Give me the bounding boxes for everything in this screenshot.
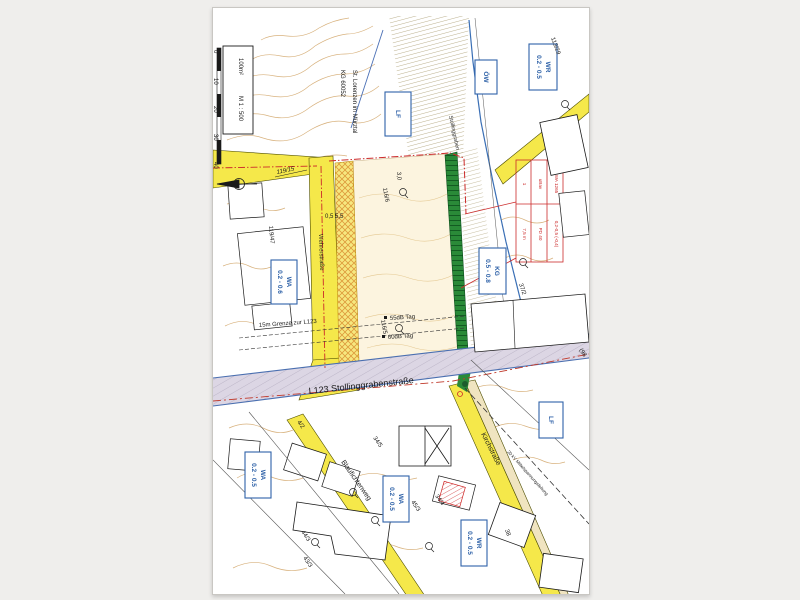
table-cell-2: uBav bbox=[538, 179, 543, 190]
zoning-box-oew: ÖW bbox=[475, 60, 497, 94]
table-cell-5: PD 40 bbox=[538, 228, 543, 241]
parcel-43-3: 43/3 bbox=[301, 556, 313, 570]
red-table-text: 1 uBav WA 1265 7,5 m PD 40 0,2-0,5 (-0,4… bbox=[522, 175, 559, 248]
zoning-box-wr-bottomright: WR 0.2 - 0.5 bbox=[461, 520, 487, 566]
label-dim-green: 3,0 bbox=[395, 172, 402, 181]
zoning-box-wa-bottommid: WA 0.2 - 0.5 bbox=[383, 476, 409, 522]
zoning-box-wa-left: WA 0.2 - 0.6 bbox=[271, 260, 297, 304]
label-dim-road: 0,5 5,5 bbox=[325, 214, 344, 220]
table-cell-4: 7,5 m bbox=[522, 228, 527, 240]
building-l-shape bbox=[293, 502, 391, 560]
table-cell-3: WA 1265 bbox=[554, 175, 559, 194]
building bbox=[539, 553, 583, 592]
scale-tick: 10 bbox=[213, 78, 218, 85]
parcel-45-3: 45/3 bbox=[409, 500, 421, 514]
zoning-density: 0.2 - 0.5 bbox=[466, 531, 473, 555]
zoning-code: LF bbox=[394, 110, 401, 118]
kg-name: St. Lorenzen im Mürztal bbox=[351, 70, 357, 133]
parcel-119-47: 119/47 bbox=[267, 226, 275, 245]
scanned-plan-sheet: 1 uBav WA 1265 7,5 m PD 40 0,2-0,5 (-0,4… bbox=[212, 7, 590, 595]
table-cell-1: 1 bbox=[522, 183, 527, 186]
zoning-box-lf-right: LF bbox=[539, 402, 563, 438]
zoning-box-wa-bottomleft: WA 0.2 - 0.5 bbox=[245, 452, 271, 498]
junction-green-marker bbox=[462, 381, 468, 387]
db60-marker bbox=[382, 335, 385, 338]
zoning-code: WA bbox=[285, 277, 292, 288]
zoning-code: WR bbox=[475, 538, 482, 549]
cadastral-map: 1 uBav WA 1265 7,5 m PD 40 0,2-0,5 (-0,4… bbox=[213, 8, 589, 594]
scale-bar-segment bbox=[217, 140, 221, 164]
scale-tick: 30 bbox=[213, 134, 218, 141]
zoning-density: 0.2 - 0.5 bbox=[535, 55, 542, 79]
building bbox=[559, 191, 589, 237]
table-cell-6: 0,2-0,5 (-0,4) bbox=[554, 221, 559, 248]
zoning-code: WA bbox=[397, 494, 404, 505]
parcel-34-5: 34/5 bbox=[371, 436, 383, 450]
zoning-code: WR bbox=[544, 62, 551, 73]
zoning-code: KG bbox=[493, 266, 500, 276]
zoning-code: LF bbox=[547, 416, 554, 424]
building-37-2 bbox=[471, 294, 589, 352]
zoning-box-lf-top: LF bbox=[385, 92, 411, 136]
zoning-box-wr-topright: WR 0.2 - 0.5 bbox=[529, 44, 557, 90]
building-gabled bbox=[399, 426, 451, 466]
kg-number: KG 60052 bbox=[339, 70, 345, 98]
zoning-box-kg: KG 0.5 - 0.8 bbox=[479, 248, 506, 294]
legend-scale-label: M 1 : 500 bbox=[237, 96, 243, 122]
scale-tick: 20 bbox=[213, 106, 218, 113]
zoning-density: 0.5 - 0.8 bbox=[484, 259, 491, 283]
zoning-code: WA bbox=[259, 470, 266, 481]
zoning-density: 0.2 - 0.5 bbox=[388, 487, 395, 511]
zoning-density: 0.2 - 0.6 bbox=[276, 270, 283, 294]
scale-tick: 40 bbox=[213, 162, 218, 169]
legend-area-label: 100m² bbox=[237, 58, 243, 75]
zoning-density: 0.2 - 0.5 bbox=[250, 463, 257, 487]
building bbox=[228, 183, 264, 219]
zoning-code: ÖW bbox=[482, 71, 491, 83]
